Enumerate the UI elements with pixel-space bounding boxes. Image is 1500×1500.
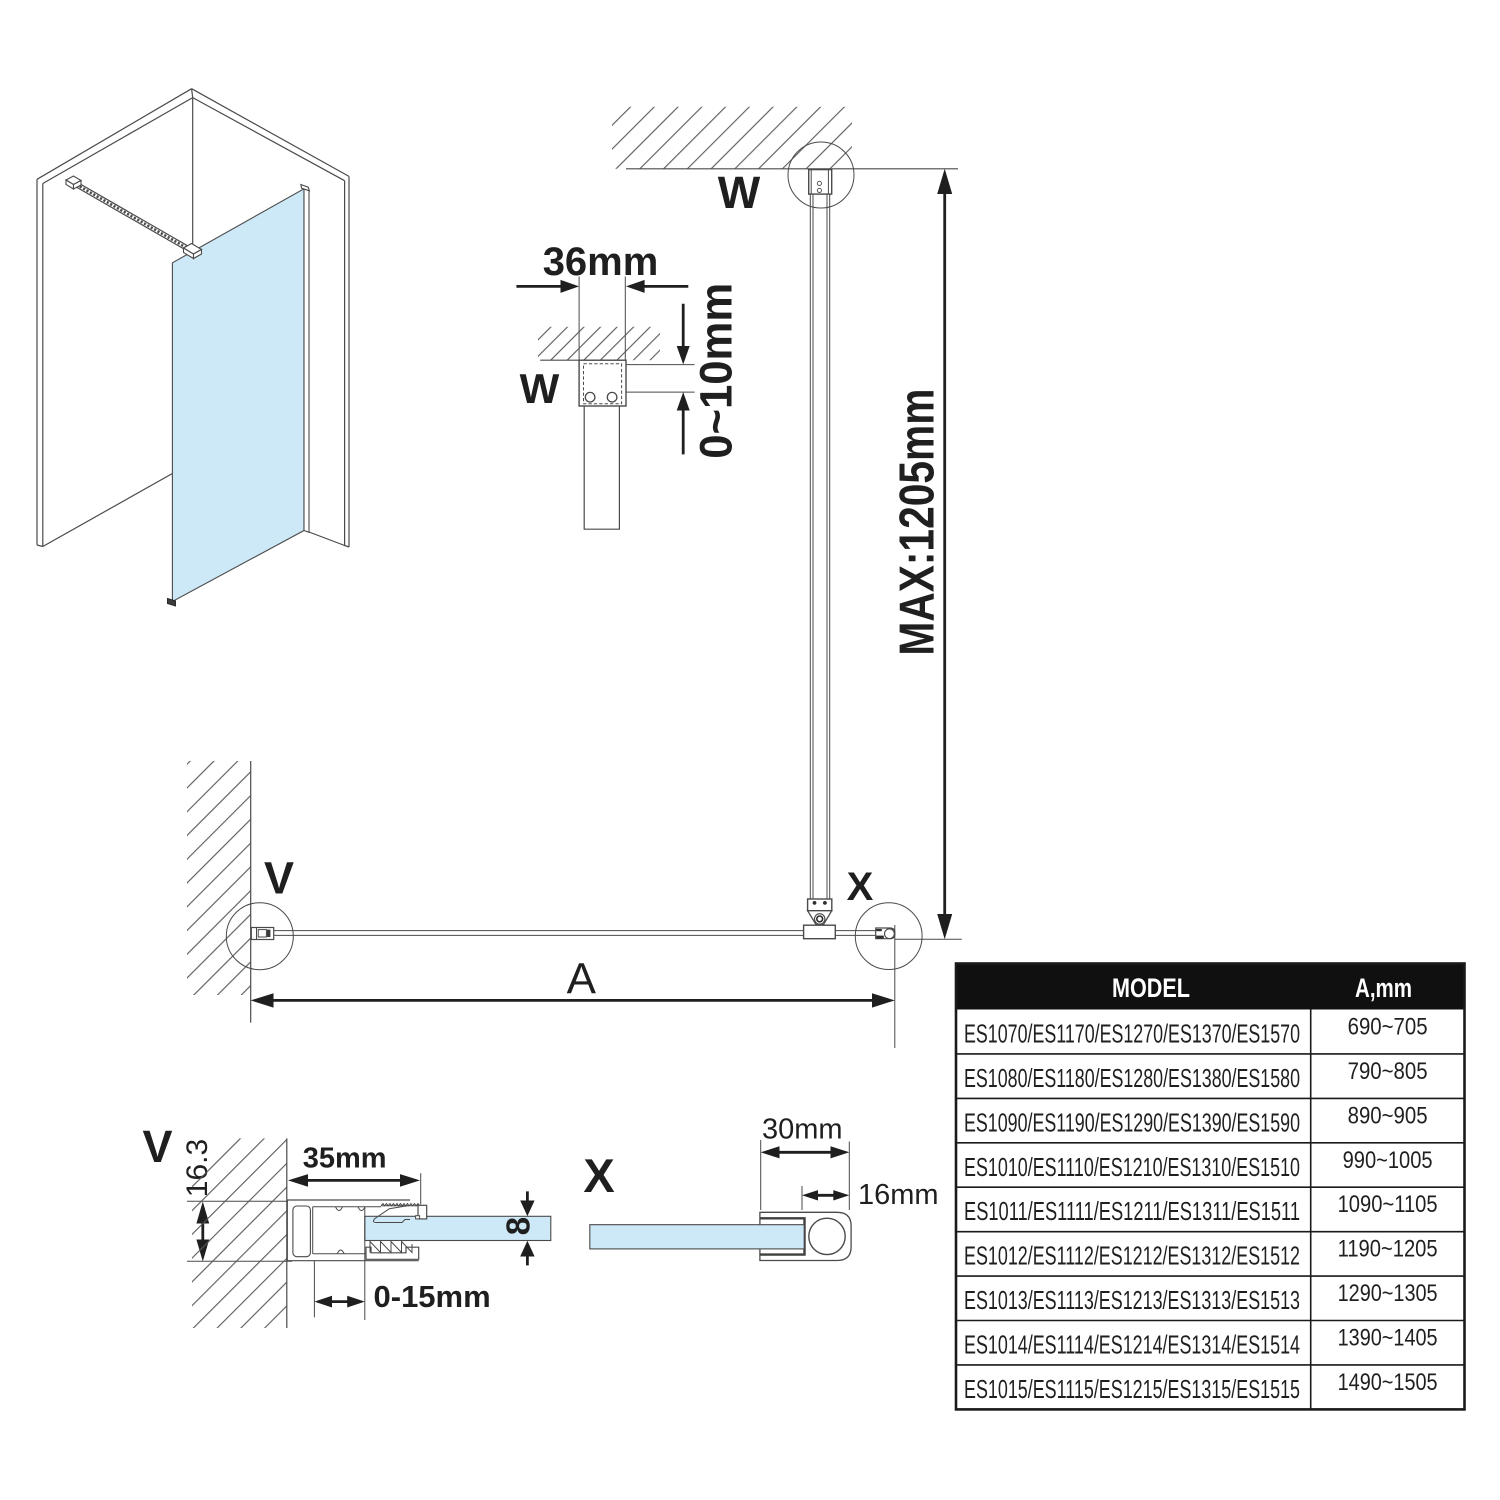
svg-text:0-15mm: 0-15mm: [374, 1279, 491, 1314]
svg-text:V: V: [264, 853, 294, 904]
svg-text:ES1014/ES1114/ES1214/ES1314/ES: ES1014/ES1114/ES1214/ES1314/ES1514: [964, 1330, 1300, 1360]
svg-text:X: X: [583, 1149, 614, 1202]
svg-text:MAX:1205mm: MAX:1205mm: [891, 389, 945, 656]
svg-text:1190~1205: 1190~1205: [1338, 1236, 1438, 1263]
svg-text:990~1005: 990~1005: [1343, 1147, 1433, 1174]
svg-text:X: X: [847, 865, 874, 909]
svg-text:W: W: [718, 167, 761, 218]
svg-text:790~805: 790~805: [1348, 1058, 1428, 1085]
svg-text:8: 8: [500, 1217, 537, 1235]
svg-text:ES1015/ES1115/ES1215/ES1315/ES: ES1015/ES1115/ES1215/ES1315/ES1515: [964, 1374, 1300, 1404]
svg-text:16mm: 16mm: [858, 1179, 939, 1211]
svg-text:0~10mm: 0~10mm: [691, 283, 742, 459]
svg-text:ES1013/ES1113/ES1213/ES1313/ES: ES1013/ES1113/ES1213/ES1313/ES1513: [964, 1285, 1300, 1315]
svg-text:MODEL: MODEL: [1112, 973, 1190, 1003]
svg-text:30mm: 30mm: [762, 1114, 843, 1146]
svg-text:690~705: 690~705: [1348, 1014, 1428, 1041]
svg-text:ES1011/ES1111/ES1211/ES1311/ES: ES1011/ES1111/ES1211/ES1311/ES1511: [964, 1196, 1300, 1226]
svg-text:36mm: 36mm: [543, 240, 659, 284]
svg-text:ES1010/ES1110/ES1210/ES1310/ES: ES1010/ES1110/ES1210/ES1310/ES1510: [964, 1152, 1300, 1182]
svg-text:V: V: [142, 1121, 172, 1172]
svg-text:1490~1505: 1490~1505: [1338, 1369, 1438, 1396]
svg-text:1390~1405: 1390~1405: [1338, 1325, 1438, 1352]
svg-text:ES1080/ES1180/ES1280/ES1380/ES: ES1080/ES1180/ES1280/ES1380/ES1580: [964, 1063, 1300, 1093]
svg-text:35mm: 35mm: [303, 1142, 387, 1174]
svg-text:ES1090/ES1190/ES1290/ES1390/ES: ES1090/ES1190/ES1290/ES1390/ES1590: [964, 1107, 1300, 1137]
svg-text:1090~1105: 1090~1105: [1338, 1191, 1438, 1218]
svg-text:A: A: [567, 955, 597, 1004]
svg-text:A,mm: A,mm: [1355, 973, 1412, 1003]
svg-text:W: W: [520, 365, 560, 412]
svg-text:1290~1305: 1290~1305: [1338, 1280, 1438, 1307]
svg-text:ES1070/ES1170/ES1270/ES1370/ES: ES1070/ES1170/ES1270/ES1370/ES1570: [964, 1019, 1300, 1049]
svg-text:ES1012/ES1112/ES1212/ES1312/ES: ES1012/ES1112/ES1212/ES1312/ES1512: [964, 1241, 1300, 1271]
svg-text:890~905: 890~905: [1348, 1102, 1428, 1129]
